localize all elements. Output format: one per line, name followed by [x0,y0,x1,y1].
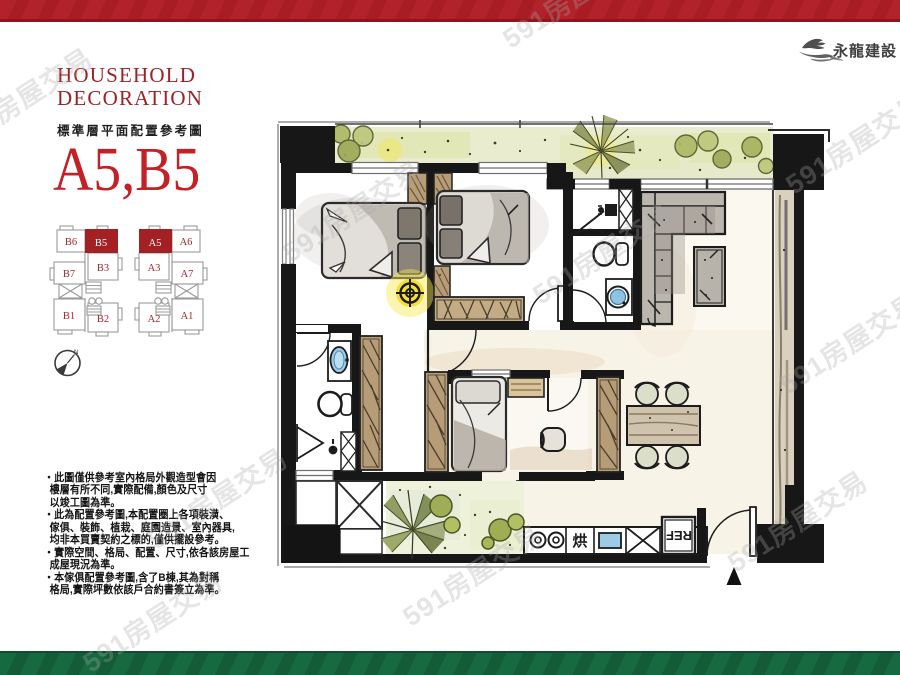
svg-text:B7: B7 [63,269,75,280]
svg-text:A6: A6 [180,237,193,248]
svg-text:烘: 烘 [572,533,587,550]
svg-text:B5: B5 [95,238,107,249]
svg-text:B2: B2 [97,314,109,325]
svg-text:A7: A7 [181,269,194,280]
svg-text:A3: A3 [148,263,161,274]
svg-text:A5: A5 [149,238,162,249]
svg-text:B1: B1 [63,311,75,322]
svg-text:A2: A2 [148,314,161,325]
svg-text:B6: B6 [65,237,77,248]
svg-text:REF: REF [666,528,692,543]
svg-text:N: N [74,350,78,356]
svg-text:A1: A1 [181,311,194,322]
svg-text:B3: B3 [97,263,109,274]
